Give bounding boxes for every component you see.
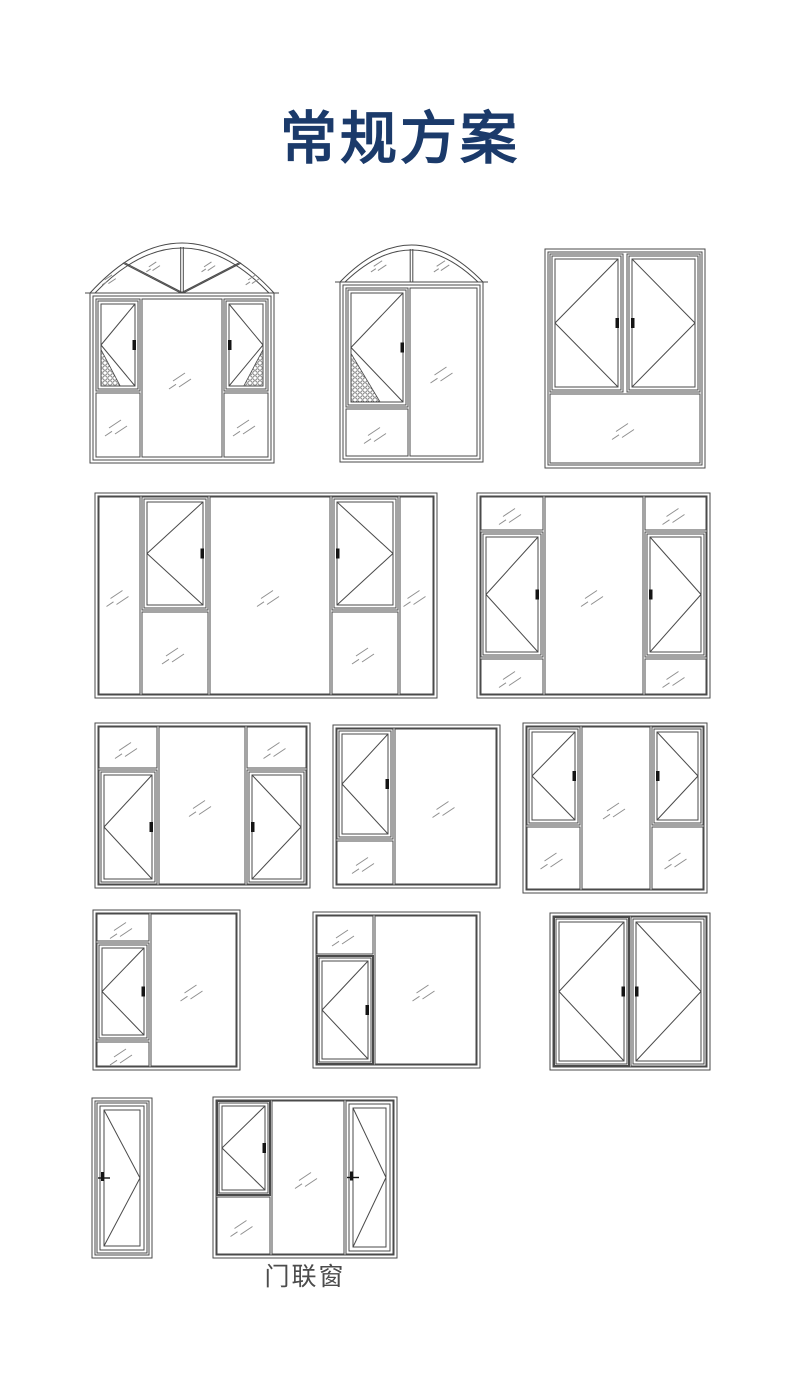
diagram-layer (0, 0, 800, 1377)
casement-pane (224, 299, 268, 391)
fixed-pane (645, 497, 706, 530)
handle-icon (142, 987, 146, 997)
casement-pane (97, 943, 149, 1040)
casement-pane (631, 917, 706, 1066)
fixed-pane (481, 659, 543, 694)
fixed-pane (337, 841, 393, 884)
casement-pane (346, 288, 408, 407)
diagram-two-column-window-casement-left (332, 724, 501, 889)
fixed-pane (346, 409, 408, 456)
handle-icon (386, 779, 390, 789)
handle-icon (536, 590, 540, 600)
handle-icon (133, 340, 137, 350)
handle-icon (263, 1143, 267, 1153)
handle-icon (649, 590, 653, 600)
window-frame (90, 293, 274, 463)
fixed-pane (400, 497, 433, 694)
handle-icon (251, 822, 255, 832)
fixed-pane (645, 659, 706, 694)
handle-icon (228, 340, 232, 350)
fixed-pane (159, 727, 245, 884)
window-frame (313, 912, 480, 1068)
diagram-single-swing-door (91, 1097, 153, 1259)
arch-transom (335, 245, 488, 282)
casement-pane (142, 497, 208, 610)
fixed-pane (272, 1101, 344, 1254)
casement-pane (645, 532, 706, 657)
handle-icon (336, 549, 340, 559)
fixed-pane (247, 727, 306, 768)
casement-pane (217, 1101, 270, 1195)
casement-pane (627, 254, 700, 392)
diagram-door-connected-window (212, 1096, 398, 1259)
handle-icon (635, 987, 639, 997)
handle-icon (366, 1005, 370, 1015)
fixed-pane (410, 288, 477, 456)
door-pane (346, 1101, 393, 1254)
fixed-pane (97, 1042, 149, 1066)
diagram-wide-five-column-window-two-casements (94, 492, 438, 699)
handle-icon (616, 318, 620, 328)
casement-pane (554, 917, 629, 1066)
diagram-double-casement-window-bottom-fixed (544, 248, 706, 469)
window-frame (93, 910, 240, 1070)
handle-icon (201, 549, 205, 559)
fixed-pane (224, 393, 268, 457)
diagram-arched-window-two-casements (89, 242, 275, 464)
handle-icon (150, 822, 154, 832)
window-frame (523, 723, 707, 893)
casement-pane (337, 729, 393, 839)
casement-pane (332, 497, 398, 610)
scheme-sheet: 常规方案 门联窗 (0, 0, 800, 1377)
door-window-caption: 门联窗 (213, 1257, 397, 1293)
arch-transom (85, 243, 279, 293)
fixed-pane (151, 914, 236, 1066)
diagram-two-column-window-casement-between-fixed (92, 909, 241, 1071)
handle-icon (622, 987, 626, 997)
diagram-arched-window-single-casement (339, 244, 484, 463)
fixed-pane (652, 827, 703, 889)
fixed-pane (142, 612, 208, 694)
casement-pane (550, 254, 623, 392)
fixed-pane (395, 729, 496, 884)
fixed-pane (97, 914, 149, 941)
casement-pane (527, 727, 580, 825)
fixed-pane (582, 727, 650, 889)
door-pane (97, 1103, 147, 1253)
fixed-pane (142, 299, 222, 457)
diagram-double-casement-window (549, 912, 711, 1071)
fixed-pane (527, 827, 580, 889)
fixed-pane (99, 497, 140, 694)
casement-pane (652, 727, 703, 825)
casement-pane (247, 770, 306, 884)
fixed-pane (210, 497, 330, 694)
diagram-three-column-window-casements-bottom-fixed (522, 722, 708, 894)
handle-icon (573, 771, 577, 781)
fixed-pane (99, 727, 157, 768)
handle-icon (401, 343, 405, 353)
casement-pane (96, 299, 140, 391)
fixed-pane (481, 497, 543, 530)
fixed-pane (317, 916, 373, 954)
fixed-pane (96, 393, 140, 457)
window-frame (477, 493, 710, 698)
fixed-pane (375, 916, 476, 1064)
fixed-pane (217, 1197, 270, 1254)
fixed-pane (550, 394, 700, 463)
handle-icon (631, 318, 635, 328)
diagram-three-column-window-casements-mid-fixed-top-bottom (476, 492, 711, 699)
diagram-three-column-window-top-fixed-casements (94, 722, 311, 889)
fixed-pane (545, 497, 643, 694)
diagram-two-column-window-top-fixed-casement (312, 911, 481, 1069)
casement-pane (99, 770, 157, 884)
casement-pane (481, 532, 543, 657)
casement-pane (317, 956, 373, 1064)
fixed-pane (332, 612, 398, 694)
window-frame (95, 723, 310, 888)
handle-icon (656, 771, 660, 781)
